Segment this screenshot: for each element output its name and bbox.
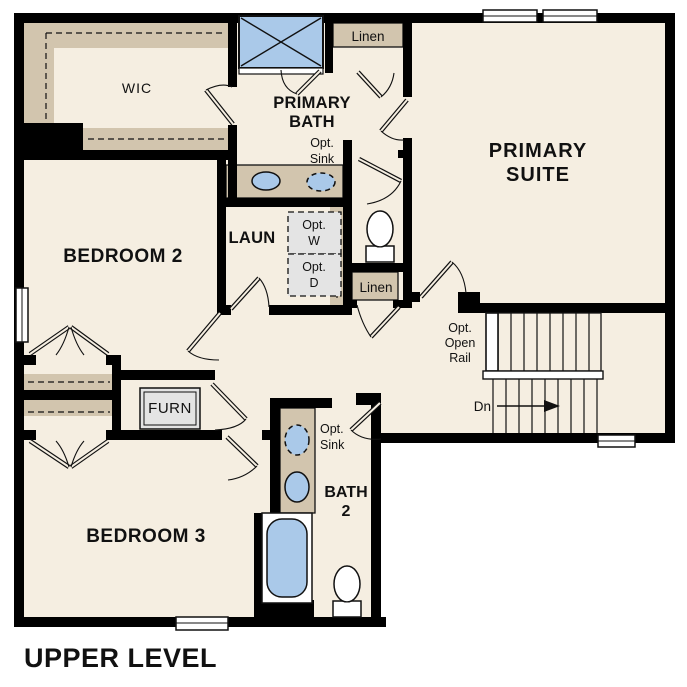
wic-bottom-shelf: [83, 128, 228, 150]
bath1-opt-sink-label-2: Sink: [310, 152, 335, 166]
opt-open-rail-label-1: Opt.: [448, 321, 472, 335]
primary-bath-label-1: PRIMARY: [273, 94, 351, 112]
bedroom3-label: BEDROOM 3: [86, 526, 206, 547]
toilet-icon-wc: [366, 211, 394, 262]
stairs-down-label: Dn: [474, 399, 491, 414]
opt-open-rail-label-3: Rail: [449, 351, 471, 365]
furnace-label: FURN: [148, 400, 192, 417]
optional-sink-icon: [307, 173, 335, 191]
opt-washer-label-2: W: [308, 234, 320, 248]
exterior-cutout: [381, 443, 687, 687]
bath2-opt-sink-label-1: Opt.: [320, 422, 344, 436]
optional-sink-icon-bath2: [285, 425, 309, 455]
linen-upper-label: Linen: [351, 29, 384, 44]
window-icon-bedroom3: [176, 617, 228, 630]
bedroom2-label: BEDROOM 2: [63, 246, 183, 267]
sink-icon-bath2: [285, 472, 309, 502]
wic-label: WIC: [122, 80, 152, 96]
opt-open-rail-label-2: Open: [445, 336, 476, 350]
bath1-opt-sink-label-1: Opt.: [310, 136, 334, 150]
bath2-opt-sink-label-2: Sink: [320, 438, 345, 452]
primary-suite-label-1: PRIMARY: [489, 140, 587, 162]
bath2-label-1: BATH: [324, 484, 367, 501]
opt-dryer-label-1: Opt.: [302, 260, 326, 274]
window-icon-suite-2: [543, 10, 597, 22]
laundry-label: LAUN: [228, 229, 275, 247]
primary-suite-label-2: SUITE: [506, 164, 570, 186]
shower-icon: [239, 16, 323, 74]
opt-dryer-label-2: D: [309, 276, 318, 290]
primary-bath-label-2: BATH: [289, 113, 335, 131]
window-icon-bedroom2: [16, 288, 28, 342]
bedroom3-closet-shelf: [24, 400, 112, 416]
stair-rail: [486, 313, 498, 371]
floor-plan-drawing: WIC PRIMARY BATH Opt. Sink Linen Linen P…: [0, 0, 687, 687]
window-icon-suite-1: [483, 10, 537, 22]
linen-hall-label: Linen: [359, 280, 392, 295]
plan-title: UPPER LEVEL: [24, 643, 217, 673]
bath2-label-2: 2: [342, 503, 351, 520]
sink-icon: [252, 172, 280, 190]
floor-plan: WIC PRIMARY BATH Opt. Sink Linen Linen P…: [0, 0, 687, 687]
opt-washer-label-1: Opt.: [302, 218, 326, 232]
stair-landing-rail: [483, 371, 603, 379]
wic-left-shelf: [24, 23, 54, 123]
wic-top-shelf: [24, 23, 228, 48]
window-icon-stair-hall: [598, 435, 635, 447]
tub-icon: [262, 513, 312, 603]
toilet-icon-bath2: [333, 566, 361, 617]
